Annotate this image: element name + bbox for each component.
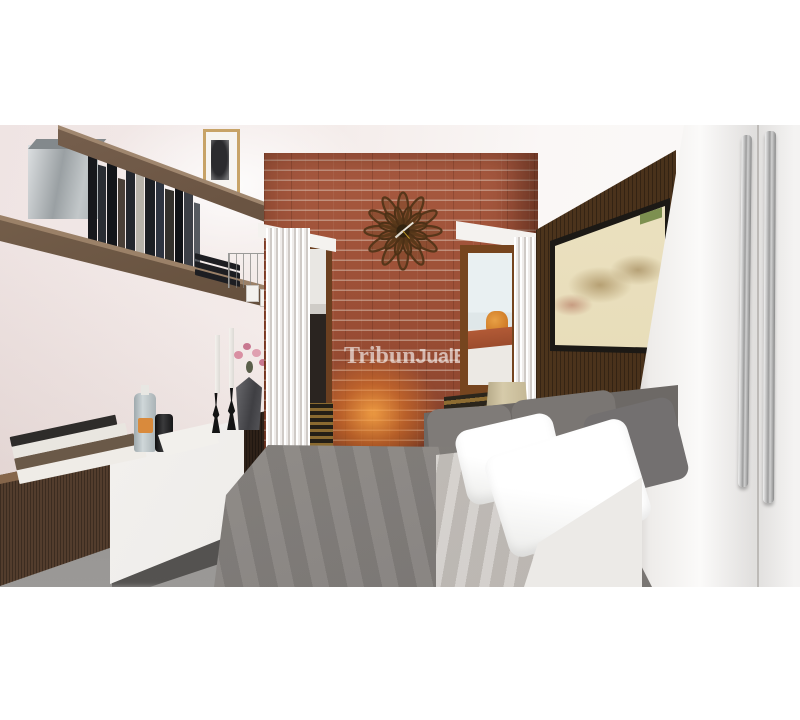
pink-flower [252,349,261,357]
watermark-text-tribun: Tribun [344,343,416,369]
book [126,166,135,252]
bedroom-render-image: TribunJualBeli [0,0,800,720]
flower-stem [246,361,253,373]
book [118,178,125,250]
wardrobe-handle [763,131,776,503]
book [165,189,174,263]
right-window-glass [468,253,512,385]
book [184,190,193,268]
book [145,175,155,258]
sunburst-wall-clock [356,184,450,278]
candle [229,328,234,388]
book [107,155,117,248]
storage-box [246,285,259,302]
pink-flower [234,351,243,359]
interior-scene: TribunJualBeli [0,125,800,587]
book [175,179,183,265]
book [98,165,106,245]
wardrobe-door-seam [757,125,759,587]
candle [215,335,220,393]
book [88,154,97,242]
pink-flower [243,343,251,350]
geometric-vase [236,377,262,430]
roof-tile-view [468,327,512,350]
bottle-label [138,418,153,433]
